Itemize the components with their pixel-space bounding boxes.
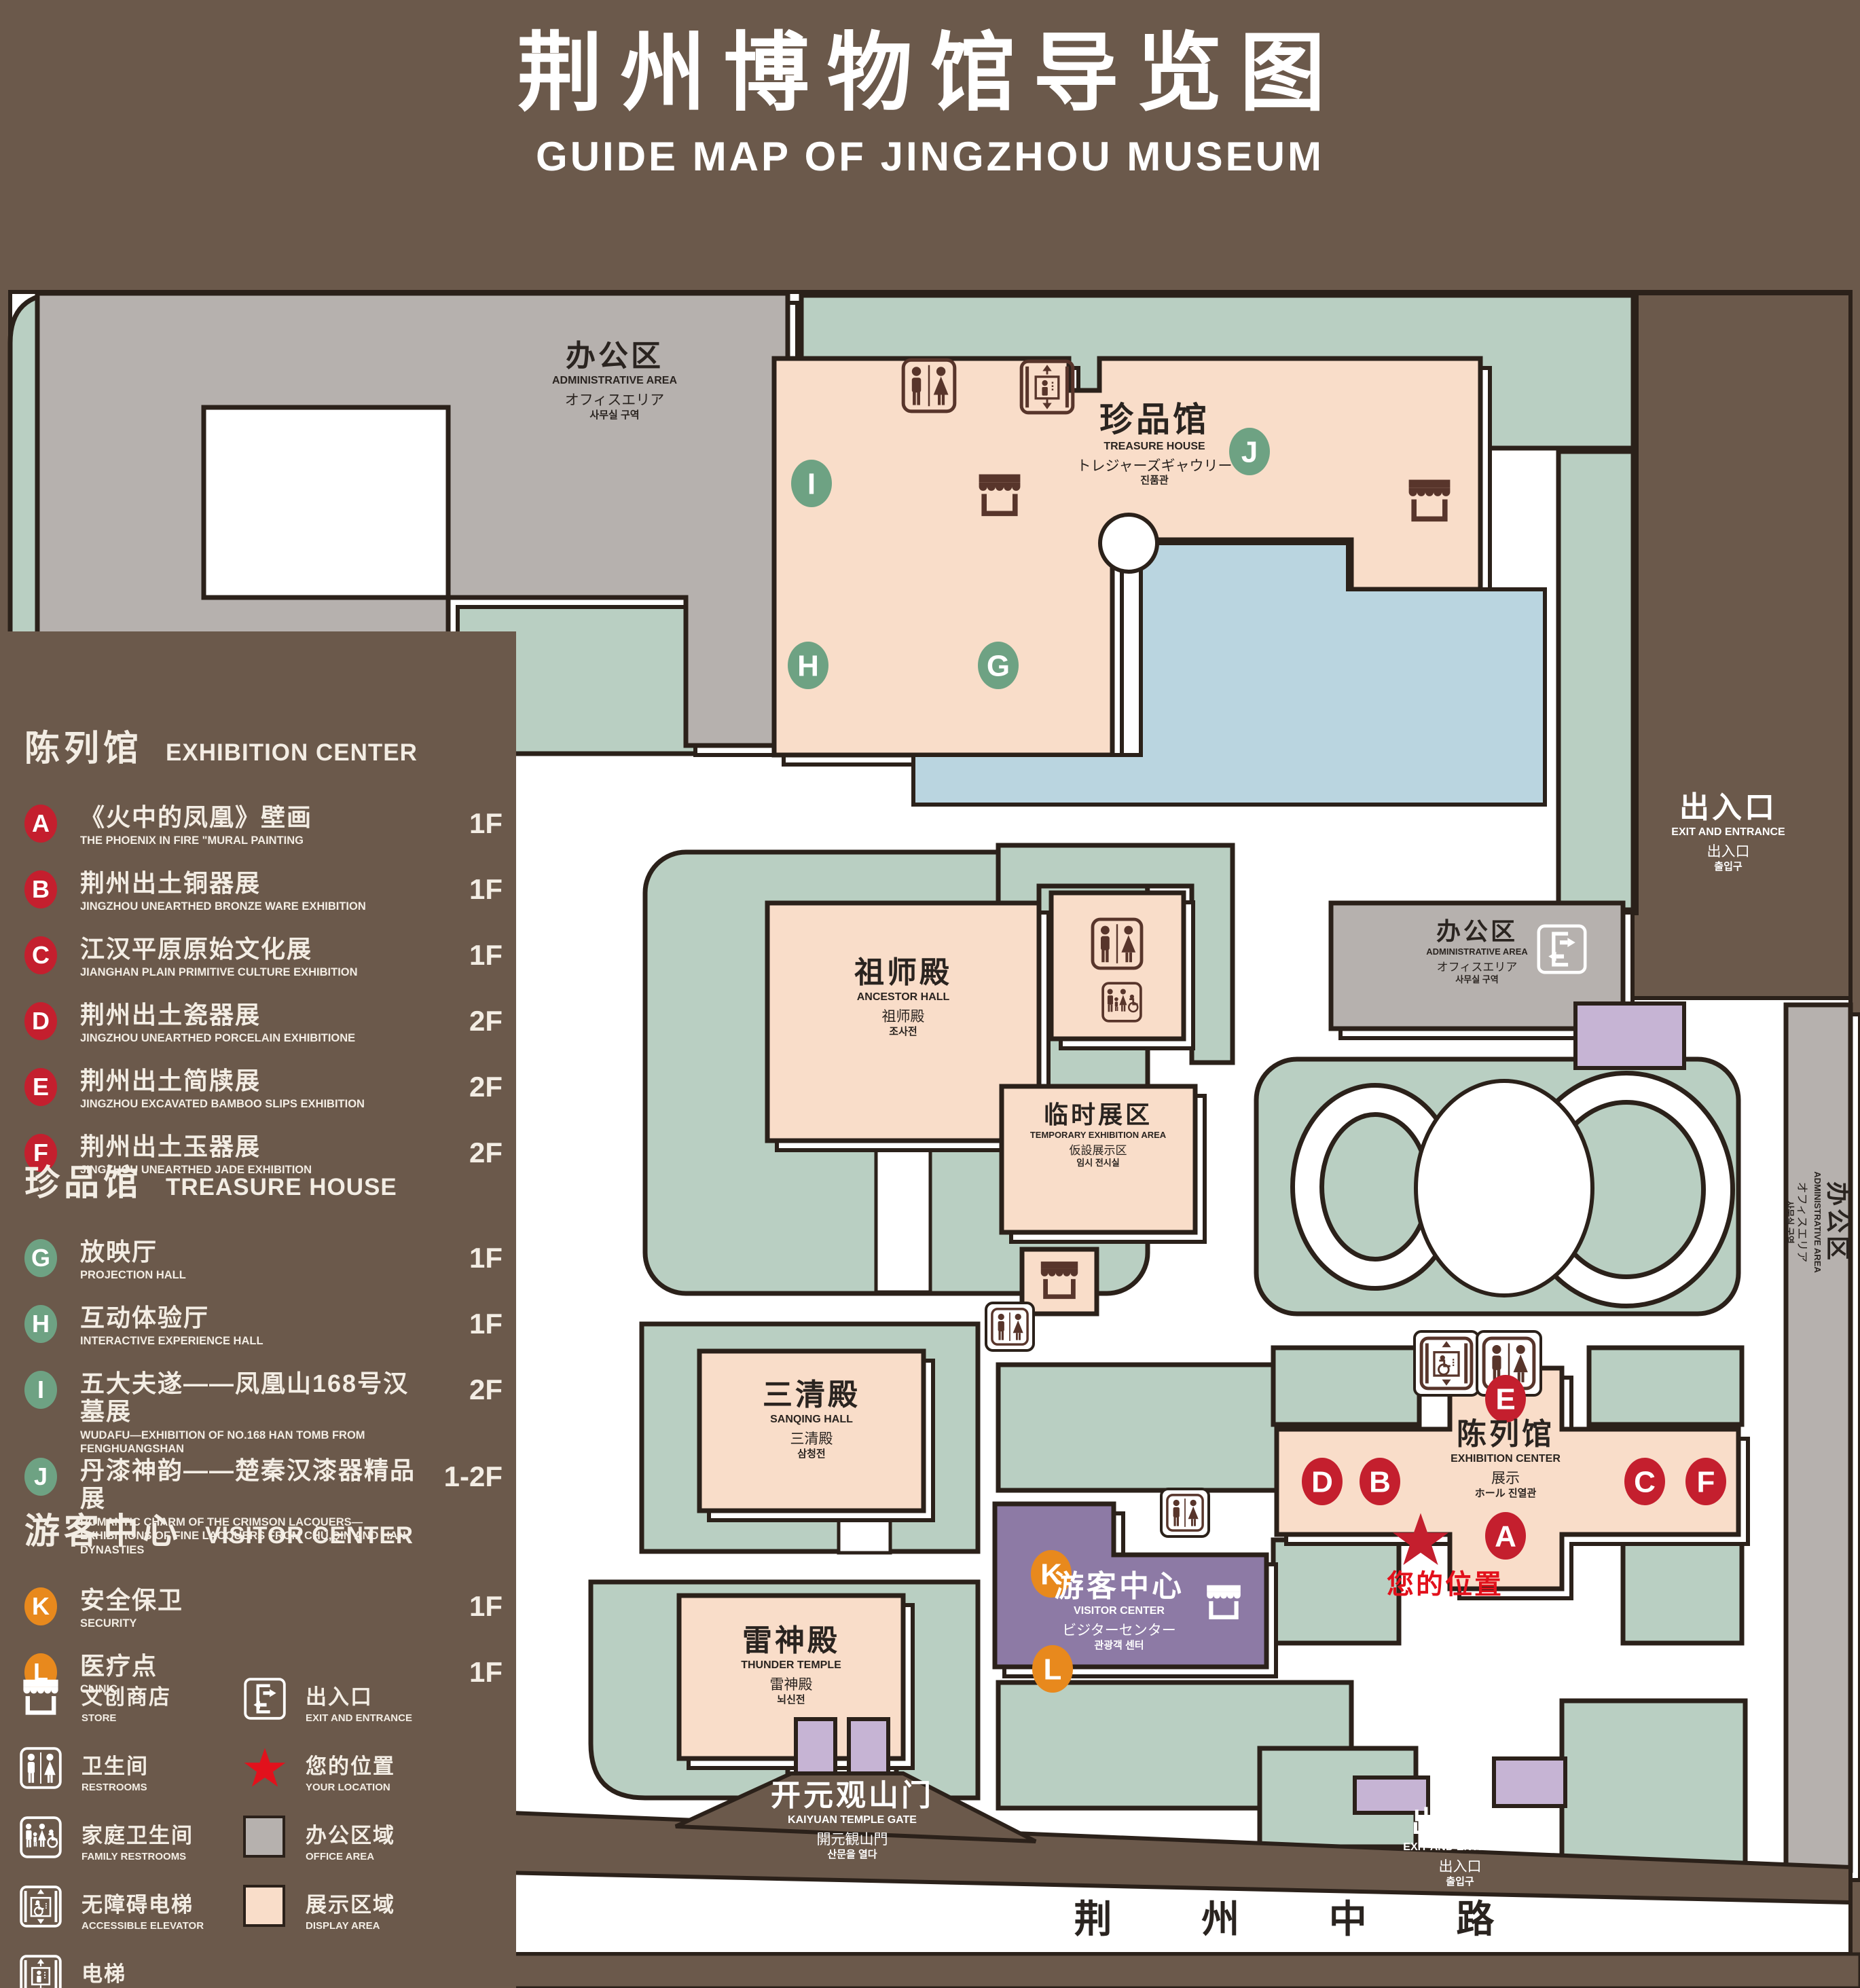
marker-badge: C	[24, 936, 57, 974]
legend-title-cn: 游客中心	[24, 1512, 182, 1551]
map-marker-I: I	[791, 460, 832, 507]
symbol-cn: 卫生间	[81, 1749, 149, 1780]
symbol-en: STORE	[81, 1712, 171, 1724]
legend-item-floor: 1F	[469, 1242, 503, 1274]
svg-text:C: C	[1634, 1465, 1656, 1498]
legend-item-floor: 1F	[469, 873, 503, 906]
legend-item-floor: 1F	[469, 807, 503, 840]
legend-item-cn: 荆州出土瓷器展	[80, 1001, 428, 1029]
svg-text:E: E	[1495, 1382, 1515, 1416]
restrooms-building	[1051, 893, 1184, 1039]
marker-badge: D	[24, 1002, 57, 1040]
svg-text:L: L	[1044, 1653, 1062, 1686]
marker-badge: B	[24, 870, 57, 908]
legend-section-treasure-house: 珍品馆TREASURE HOUSE G放映厅PROJECTION HALL1FH…	[24, 1154, 503, 1558]
symbol-en: DISPLAY AREA	[306, 1920, 395, 1932]
family-restroom-icon	[19, 1816, 62, 1859]
symbol-cn: 家庭卫生间	[81, 1818, 194, 1849]
marker-badge: H	[24, 1305, 57, 1343]
legend-item-en: WUDAFU—EXHIBITION OF NO.168 HAN TOMB FRO…	[80, 1429, 428, 1456]
svg-text:I: I	[807, 467, 816, 500]
map-marker-G: G	[978, 642, 1019, 689]
legend-item-en: THE PHOENIX IN FIRE "MURAL PAINTING	[80, 834, 428, 848]
marker-badge: G	[24, 1239, 57, 1277]
legend-item-I: I五大夫遂——凤凰山168号汉墓展WUDAFU—EXHIBITION OF NO…	[24, 1369, 503, 1456]
exit-top-building	[1575, 1004, 1684, 1068]
label-office-top-left: 办公区ADMINISTRATIVE AREA オフィスエリア사무실 구역	[552, 339, 677, 421]
legend-title-cn: 珍品馆	[24, 1164, 143, 1203]
legend-panel: 陈列馆EXHIBITION CENTER A《火中的凤凰》壁画THE PHOEN…	[0, 631, 516, 1988]
label-treasure-house: 珍品馆TREASURE HOUSE トレジャーズギャウリー진품관	[1077, 401, 1233, 487]
legend-item-K: K安全保卫SECURITY1F	[24, 1586, 503, 1652]
label-your-location: 您的位置	[1387, 1570, 1503, 1600]
legend-item-cn: 互动体验厅	[80, 1304, 428, 1331]
legend-item-cn: 荆州出土铜器展	[80, 869, 428, 897]
map-marker-L: L	[1032, 1645, 1073, 1693]
legend-item-en: SECURITY	[80, 1617, 428, 1631]
symbol-cn: 电梯	[81, 1957, 126, 1987]
symbol-en: OFFICE AREA	[306, 1851, 395, 1862]
label-exit-bottom: 出入口EXIT AND ENTRANCE 出入口출입구	[1403, 1806, 1516, 1888]
svg-text:F: F	[1697, 1465, 1715, 1498]
office-building-right-strip	[1786, 1005, 1850, 1871]
gate-pillar-left	[796, 1719, 835, 1775]
label-sanqing-hall: 三清殿SANQING HALL 三清殿삼청전	[763, 1378, 860, 1460]
marker-badge: A	[24, 805, 57, 843]
pond-arc-path	[1100, 515, 1157, 572]
star-icon	[243, 1746, 287, 1790]
symbol-cn: 出入口	[306, 1680, 412, 1710]
map-marker-E: E	[1485, 1375, 1526, 1422]
legend-title-en: TREASURE HOUSE	[166, 1174, 397, 1200]
symbol-cn: 您的位置	[306, 1749, 395, 1780]
legend-item-floor: 2F	[469, 1071, 503, 1103]
legend-item-cn: 放映厅	[80, 1238, 428, 1266]
lawn-exhibition-tr	[1589, 1348, 1742, 1424]
label-office-right: 办公区ADMINISTRATIVE AREA オフィスエリア사무실 구역	[1785, 1171, 1851, 1273]
marker-badge: E	[24, 1068, 57, 1106]
legend-item-floor: 1-2F	[444, 1460, 503, 1493]
legend-item-C: C江汉平原原始文化展JIANGHAN PLAIN PRIMITIVE CULTU…	[24, 935, 503, 1001]
legend-item-en: JINGZHOU EXCAVATED BAMBOO SLIPS EXHIBITI…	[80, 1097, 428, 1111]
accessible-elevator-icon	[1415, 1331, 1478, 1395]
label-road: 荆 州 中 路	[1074, 1898, 1534, 1941]
legend-item-en: JIANGHAN PLAIN PRIMITIVE CULTURE EXHIBIT…	[80, 965, 428, 980]
svg-text:D: D	[1311, 1465, 1333, 1498]
lawn-right-of-pond	[1558, 452, 1633, 910]
legend-item-en: INTERACTIVE EXPERIENCE HALL	[80, 1334, 428, 1348]
path-ancestor	[876, 1141, 930, 1292]
map-marker-F: F	[1685, 1458, 1726, 1505]
label-exit-top: 出入口EXIT AND ENTRANCE 出入口출입구	[1671, 791, 1785, 872]
map-marker-H: H	[788, 642, 828, 689]
legend-item-H: H互动体验厅INTERACTIVE EXPERIENCE HALL1F	[24, 1304, 503, 1369]
map-marker-D: D	[1302, 1458, 1343, 1505]
label-office-center: 办公区ADMINISTRATIVE AREA オフィスエリア사무실 구역	[1426, 918, 1528, 984]
lawn-exhibition-bl	[1273, 1540, 1399, 1643]
map-marker-J: J	[1229, 428, 1270, 475]
symbol-en: FAMILY RESTROOMS	[81, 1851, 194, 1862]
svg-text:H: H	[797, 649, 819, 682]
symbol-cn: 办公区域	[306, 1818, 395, 1849]
legend-item-floor: 2F	[469, 1005, 503, 1037]
lawn-exhibition-br	[1623, 1540, 1742, 1643]
legend-item-cn: 江汉平原原始文化展	[80, 935, 428, 963]
label-ancestor-hall: 祖师殿ANCESTOR HALL 祖师殿조사전	[854, 956, 952, 1037]
marker-badge: J	[24, 1458, 57, 1496]
symbol-en: ACCESSIBLE ELEVATOR	[81, 1920, 204, 1932]
legend-item-en: JINGZHOU UNEARTHED BRONZE WARE EXHIBITIO…	[80, 900, 428, 914]
restroom-icon	[986, 1303, 1034, 1350]
marker-badge: K	[24, 1587, 57, 1625]
restroom-icon	[1161, 1489, 1209, 1536]
legend-item-A: A《火中的凤凰》壁画THE PHOENIX IN FIRE "MURAL PAI…	[24, 803, 503, 869]
legend-item-floor: 1F	[469, 939, 503, 972]
lawn-bottom-right	[1562, 1701, 1745, 1864]
page-subtitle: GUIDE MAP OF JINGZHOU MUSEUM	[536, 133, 1324, 180]
legend-item-E: E荆州出土简牍展JINGZHOU EXCAVATED BAMBOO SLIPS …	[24, 1067, 503, 1133]
svg-text:J: J	[1241, 435, 1258, 468]
legend-item-G: G放映厅PROJECTION HALL1F	[24, 1238, 503, 1304]
legend-item-D: D荆州出土瓷器展JINGZHOU UNEARTHED PORCELAIN EXH…	[24, 1001, 503, 1067]
store-kiosk-building	[1022, 1249, 1097, 1314]
legend-title-cn: 陈列馆	[24, 729, 143, 769]
garden-center-plaza	[1416, 1081, 1592, 1295]
legend-item-floor: 2F	[469, 1374, 503, 1406]
restroom-icon	[19, 1746, 62, 1790]
legend-title-en: EXHIBITION CENTER	[166, 739, 418, 766]
legend-item-floor: 1F	[469, 1590, 503, 1623]
display-area-swatch	[243, 1885, 285, 1927]
symbol-en: YOUR LOCATION	[306, 1782, 395, 1793]
legend-title-en: VISITOR CENTER	[205, 1522, 414, 1549]
legend-item-floor: 1F	[469, 1308, 503, 1340]
symbol-en: EXIT AND ENTRANCE	[306, 1712, 412, 1724]
legend-item-cn: 医疗点	[80, 1652, 428, 1680]
svg-text:G: G	[987, 649, 1010, 682]
marker-badge: I	[24, 1371, 57, 1409]
legend-item-B: B荆州出土铜器展JINGZHOU UNEARTHED BRONZE WARE E…	[24, 869, 503, 935]
accessible-elevator-icon	[19, 1885, 62, 1928]
lawn-exhibition-tl	[1273, 1348, 1419, 1424]
symbol-cn: 展示区域	[306, 1888, 395, 1918]
map-marker-B: B	[1360, 1458, 1400, 1505]
map-marker-A: A	[1485, 1512, 1526, 1560]
legend-item-cn: 荆州出土简牍展	[80, 1067, 428, 1094]
label-temporary-exhibition: 临时展区TEMPORARY EXHIBITION AREA 仮設展示区임시 전시…	[1030, 1101, 1166, 1168]
label-visitor-center: 游客中心VISITOR CENTER ビジターセンター관광객 센터	[1054, 1570, 1184, 1651]
legend-item-floor: 1F	[469, 1656, 503, 1689]
office-area-swatch	[243, 1816, 285, 1858]
svg-text:B: B	[1369, 1465, 1391, 1498]
page-title: 荆州博物馆导览图	[517, 4, 1343, 128]
exit-icon	[243, 1677, 287, 1720]
symbol-cn: 文创商店	[81, 1680, 171, 1710]
gate-pillar-right	[849, 1719, 888, 1775]
guide-map-poster: ABCDEFGHIJKL 荆州博物馆导览图 GUIDE MAP OF JINGZ…	[0, 0, 1860, 1988]
store-icon	[19, 1677, 62, 1720]
legend-item-en: PROJECTION HALL	[80, 1268, 428, 1283]
exit-bottom-building-right	[1494, 1759, 1565, 1806]
legend-item-cn: 五大夫遂——凤凰山168号汉墓展	[80, 1369, 428, 1426]
symbol-cn: 无障碍电梯	[81, 1888, 204, 1918]
elevator-icon	[19, 1954, 62, 1988]
legend-item-cn: 安全保卫	[80, 1586, 428, 1614]
legend-section-exhibition-center: 陈列馆EXHIBITION CENTER A《火中的凤凰》壁画THE PHOEN…	[24, 720, 503, 1198]
label-exhibition-center: 陈列馆EXHIBITION CENTER 展示ホール 진열관	[1451, 1418, 1561, 1499]
label-kaiyuan-gate: 开元观山门KAIYUAN TEMPLE GATE 開元観山門산문을 열다	[771, 1779, 934, 1860]
map-marker-C: C	[1624, 1458, 1665, 1505]
legend-item-cn: 《火中的凤凰》壁画	[80, 803, 428, 831]
svg-text:A: A	[1495, 1520, 1516, 1553]
symbol-en: RESTROOMS	[81, 1782, 149, 1793]
legend-item-en: JINGZHOU UNEARTHED PORCELAIN EXHIBITIONE	[80, 1031, 428, 1046]
label-thunder-temple: 雷神殿THUNDER TEMPLE 雷神殿뇌신전	[741, 1624, 841, 1706]
